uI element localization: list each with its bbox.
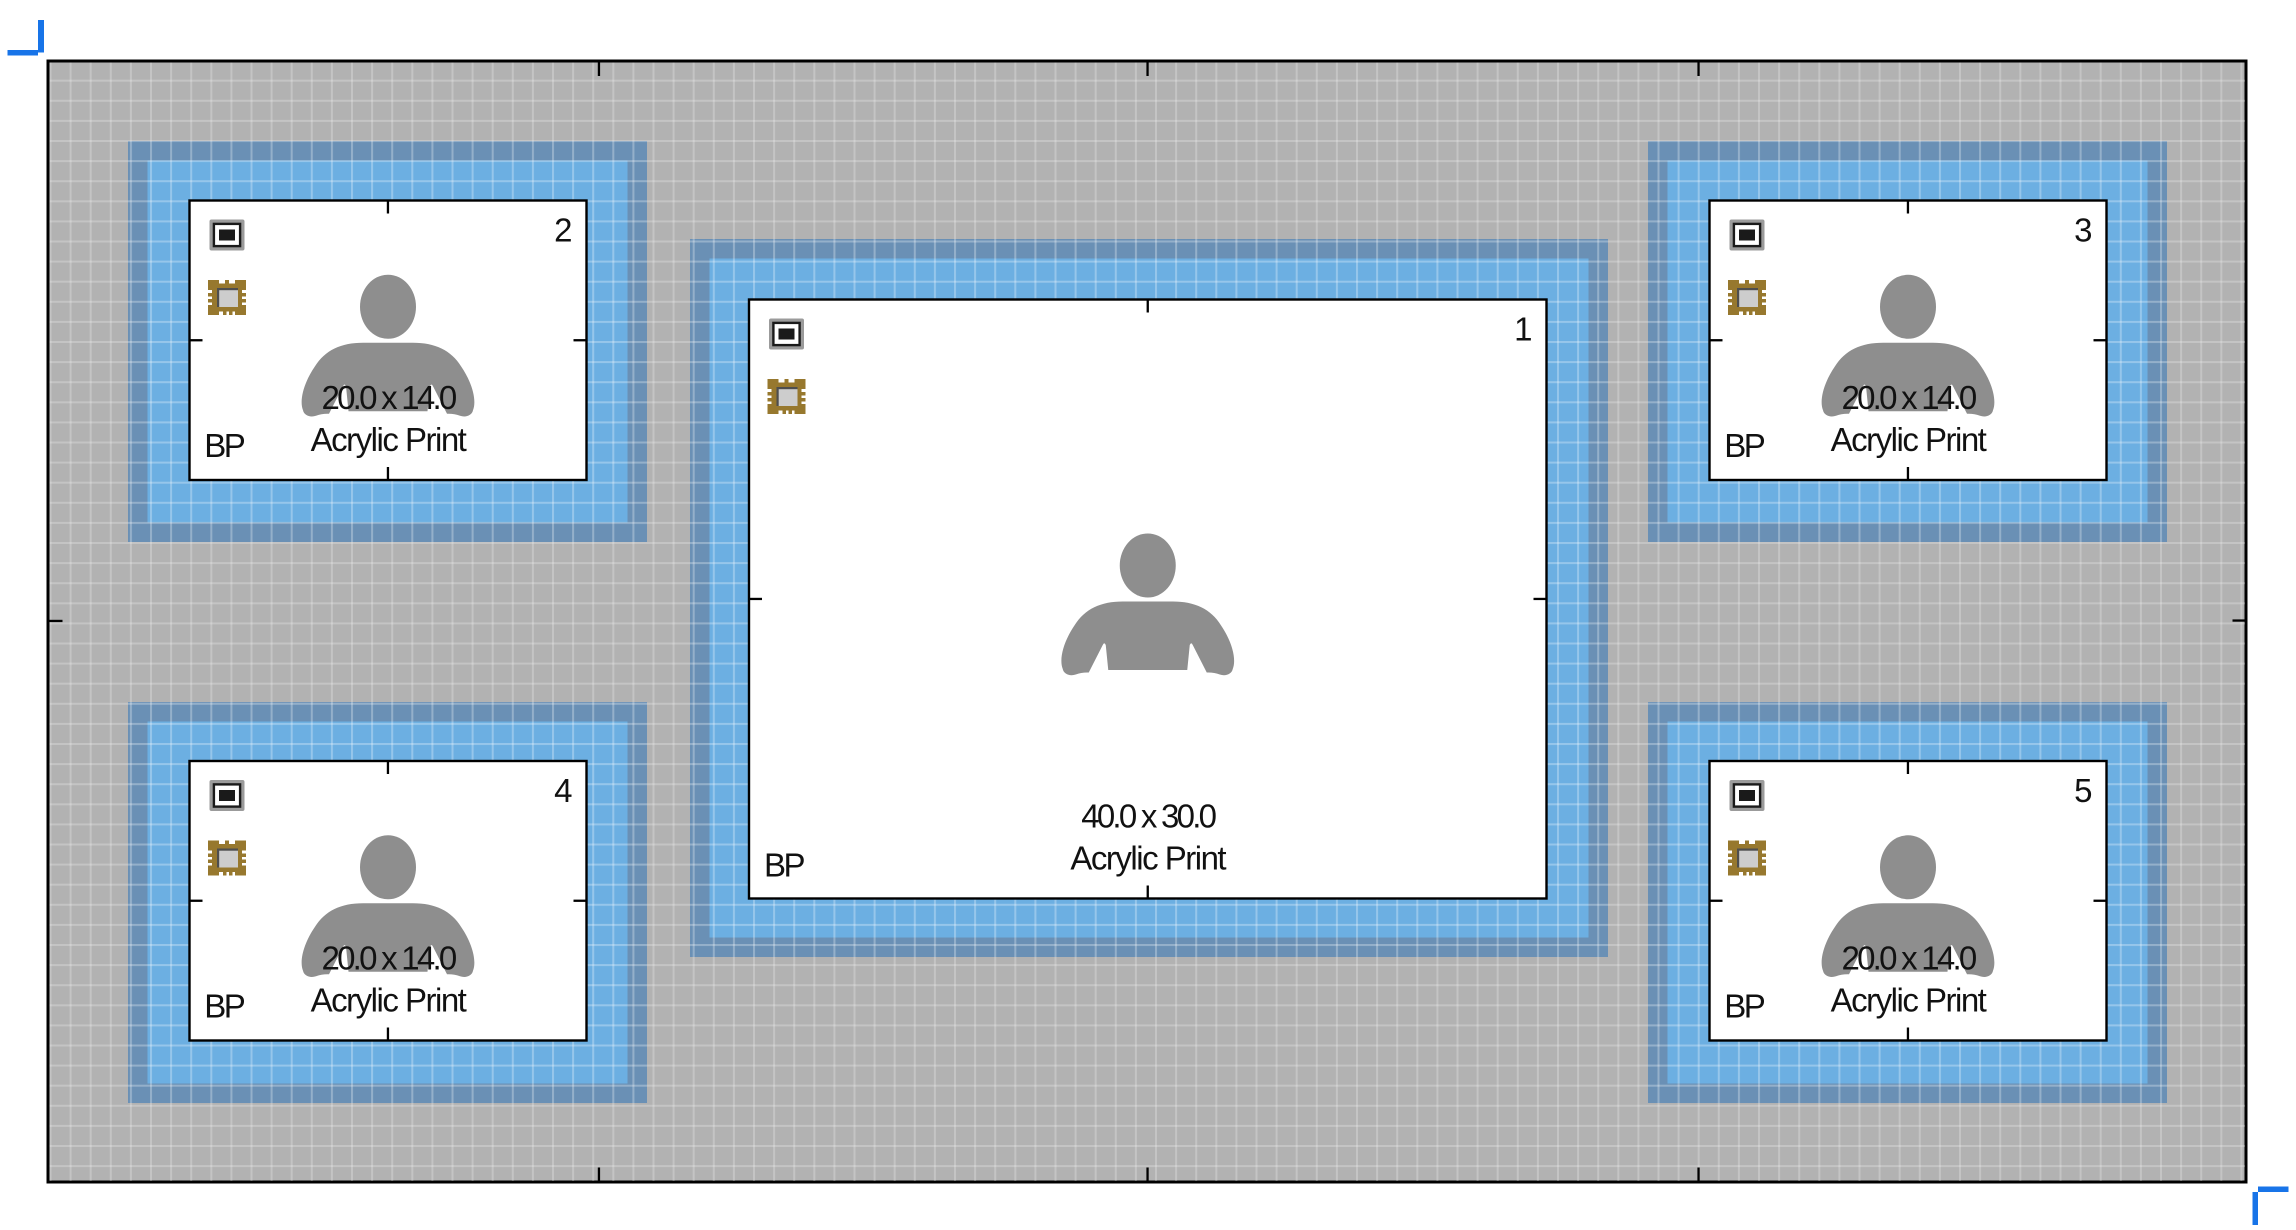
svg-text:20.0 x 14.0: 20.0 x 14.0 — [1841, 379, 1976, 416]
svg-text:Acrylic Print: Acrylic Print — [1831, 421, 1987, 458]
svg-text:4: 4 — [554, 772, 572, 809]
svg-text:BP: BP — [204, 988, 245, 1025]
svg-text:BP: BP — [1724, 988, 1765, 1025]
svg-text:Acrylic Print: Acrylic Print — [311, 421, 467, 458]
svg-text:BP: BP — [1724, 427, 1765, 464]
svg-text:5: 5 — [2074, 772, 2092, 809]
svg-text:20.0 x 14.0: 20.0 x 14.0 — [1841, 939, 1976, 976]
svg-text:2: 2 — [554, 212, 572, 249]
svg-text:BP: BP — [764, 847, 805, 884]
svg-text:Acrylic Print: Acrylic Print — [1831, 981, 1987, 1018]
svg-text:Acrylic Print: Acrylic Print — [311, 981, 467, 1018]
svg-text:20.0 x 14.0: 20.0 x 14.0 — [321, 379, 456, 416]
svg-text:1: 1 — [1514, 311, 1532, 348]
svg-text:3: 3 — [2074, 212, 2092, 249]
svg-text:Acrylic Print: Acrylic Print — [1070, 839, 1226, 876]
svg-text:BP: BP — [204, 427, 245, 464]
svg-text:40.0 x 30.0: 40.0 x 30.0 — [1081, 797, 1216, 834]
svg-text:20.0 x 14.0: 20.0 x 14.0 — [321, 939, 456, 976]
